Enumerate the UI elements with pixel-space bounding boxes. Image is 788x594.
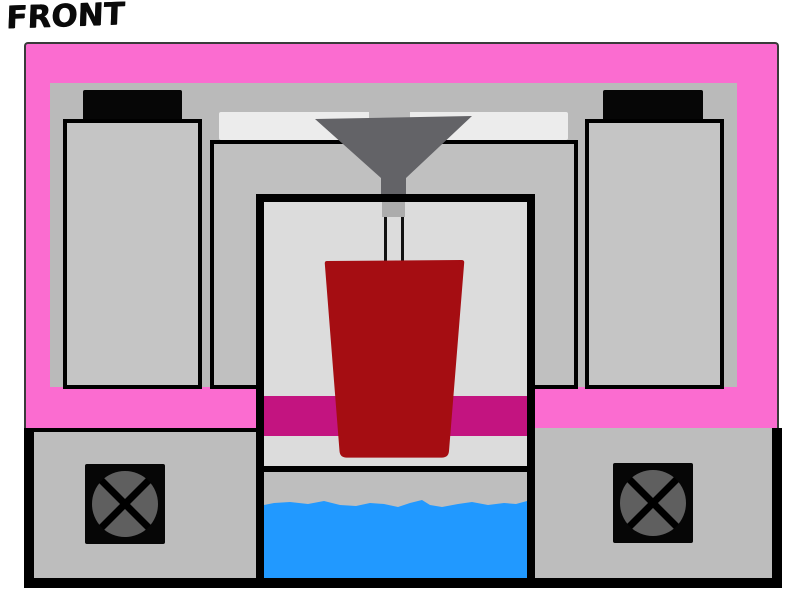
feed-rod-right	[401, 217, 404, 265]
top-strip-notch	[369, 112, 410, 119]
right-fan	[613, 463, 693, 543]
feed-stem	[382, 202, 405, 217]
liquid-surface	[264, 500, 527, 579]
bottom-right-unit	[535, 428, 782, 588]
left-fan	[85, 464, 165, 544]
left-tower	[63, 119, 202, 389]
right-tower-cap	[603, 90, 703, 121]
machine-front-diagram: FRONT	[0, 0, 788, 594]
left-tower-cap	[83, 90, 182, 121]
base-bar	[24, 578, 782, 588]
liquid-reservoir	[264, 472, 527, 588]
feed-rod-left	[384, 217, 387, 265]
magenta-band	[264, 396, 527, 436]
front-label: FRONT	[5, 0, 136, 42]
bottom-left-unit	[24, 428, 256, 588]
right-tower	[585, 119, 724, 389]
build-chamber	[256, 194, 535, 588]
